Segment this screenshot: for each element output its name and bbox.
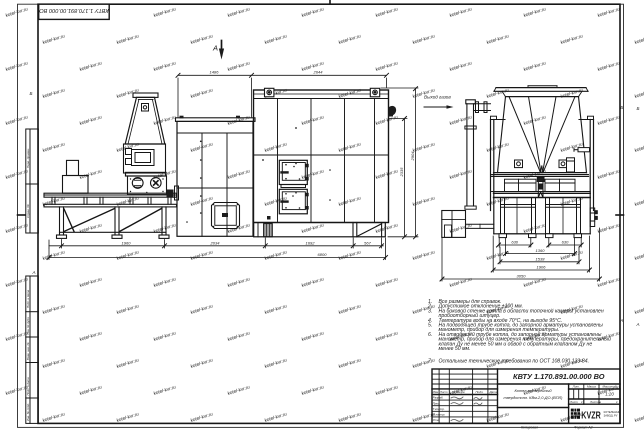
svg-text:№ докум.: № докум.: [452, 390, 465, 394]
svg-text:Формат А2: Формат А2: [574, 425, 593, 429]
svg-text:Масштаб: Масштаб: [602, 385, 616, 389]
svg-text:3.: 3.: [428, 308, 432, 314]
svg-text:Б: Б: [30, 91, 33, 96]
svg-text:2335: 2335: [399, 167, 404, 178]
svg-text:твердотопл. КВм-2,0-ДО-(ВПЛ): твердотопл. КВм-2,0-ДО-(ВПЛ): [504, 395, 564, 400]
svg-text:Б: Б: [637, 106, 640, 111]
svg-text:1360: 1360: [536, 248, 546, 253]
svg-text:2034: 2034: [210, 240, 221, 245]
svg-text:567: 567: [364, 240, 371, 245]
svg-text:6800: 6800: [318, 252, 328, 257]
svg-text:Инв. № дубл.: Инв. № дубл.: [26, 317, 30, 335]
svg-text:Н.контр.: Н.контр.: [433, 413, 446, 417]
svg-text:А: А: [31, 270, 35, 275]
svg-text:1960: 1960: [122, 240, 132, 245]
svg-text:Лист: Лист: [569, 400, 578, 404]
svg-text:1692: 1692: [306, 240, 316, 245]
svg-text:А: А: [212, 44, 218, 53]
svg-text:2904: 2904: [410, 151, 415, 162]
svg-text:3050: 3050: [517, 274, 527, 279]
svg-text:1:20: 1:20: [605, 392, 614, 397]
svg-text:Подп.: Подп.: [476, 390, 484, 394]
svg-text:Б: Б: [620, 105, 623, 110]
svg-text:ЗАВОД .РУ: ЗАВОД .РУ: [604, 413, 618, 417]
svg-text:Разраб.: Разраб.: [433, 396, 444, 400]
svg-text:Взам. инв. №: Взам. инв. №: [26, 342, 30, 361]
svg-text:Выход газов: Выход газов: [424, 95, 451, 100]
svg-text:5.: 5.: [428, 323, 432, 329]
svg-text:2644: 2644: [313, 70, 324, 75]
svg-text:Подп. и дата: Подп. и дата: [26, 290, 30, 308]
svg-text:7.: 7.: [428, 359, 432, 365]
svg-text:А: А: [619, 318, 623, 323]
svg-text:1486: 1486: [210, 70, 220, 75]
svg-text:Лит.: Лит.: [572, 385, 580, 389]
svg-text:КВТУ 1.170.891.00.000 ВО: КВТУ 1.170.891.00.000 ВО: [39, 7, 109, 13]
svg-text:Утв.: Утв.: [433, 418, 440, 422]
svg-text:Справ. №: Справ. №: [26, 204, 30, 218]
svg-text:6.: 6.: [428, 332, 432, 338]
svg-text:630: 630: [511, 240, 518, 245]
svg-text:1538: 1538: [536, 256, 546, 261]
svg-text:Т.контр.: Т.контр.: [433, 407, 445, 411]
svg-text:менее 50 мм.: менее 50 мм.: [439, 346, 471, 352]
svg-text:КВТУ 1.170.891.00.000 ВО: КВТУ 1.170.891.00.000 ВО: [513, 372, 605, 381]
svg-text:KVZR: KVZR: [581, 410, 601, 421]
svg-text:Пров.: Пров.: [433, 401, 441, 405]
svg-text:А: А: [635, 322, 639, 327]
svg-text:Масса: Масса: [587, 385, 596, 389]
svg-text:Подп. и дата: Подп. и дата: [26, 377, 30, 395]
svg-text:Изм. Лист: Изм. Лист: [433, 390, 448, 394]
svg-text:Инв. № подл.: Инв. № подл.: [26, 403, 30, 421]
svg-text:Остальные технические требован: Остальные технические требования по ОСТ …: [439, 359, 590, 365]
svg-text:Листов: Листов: [589, 400, 601, 404]
svg-text:630: 630: [562, 240, 569, 245]
svg-text:Дата: Дата: [489, 390, 498, 394]
svg-text:КОТЕЛЬНЫЙ: КОТЕЛЬНЫЙ: [604, 410, 621, 414]
svg-text:Копировал: Копировал: [521, 425, 538, 429]
svg-text:Котел водогрейный: Котел водогрейный: [514, 388, 552, 393]
svg-text:Перв. примен.: Перв. примен.: [26, 148, 30, 168]
svg-text:1906: 1906: [537, 265, 547, 270]
